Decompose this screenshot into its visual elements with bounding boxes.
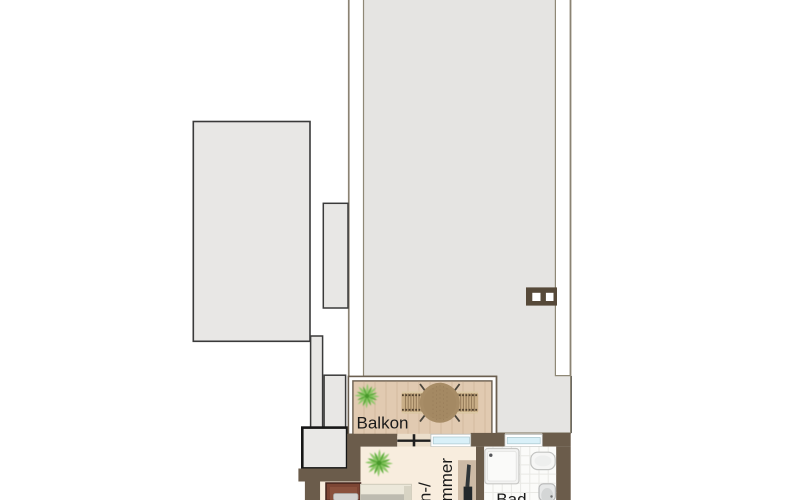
svg-text:Schlafzimmer: Schlafzimmer [437,458,456,500]
svg-text:Bad: Bad [496,490,526,500]
svg-text:Wohn-/: Wohn-/ [416,482,435,500]
svg-text:Balkon: Balkon [357,414,409,433]
